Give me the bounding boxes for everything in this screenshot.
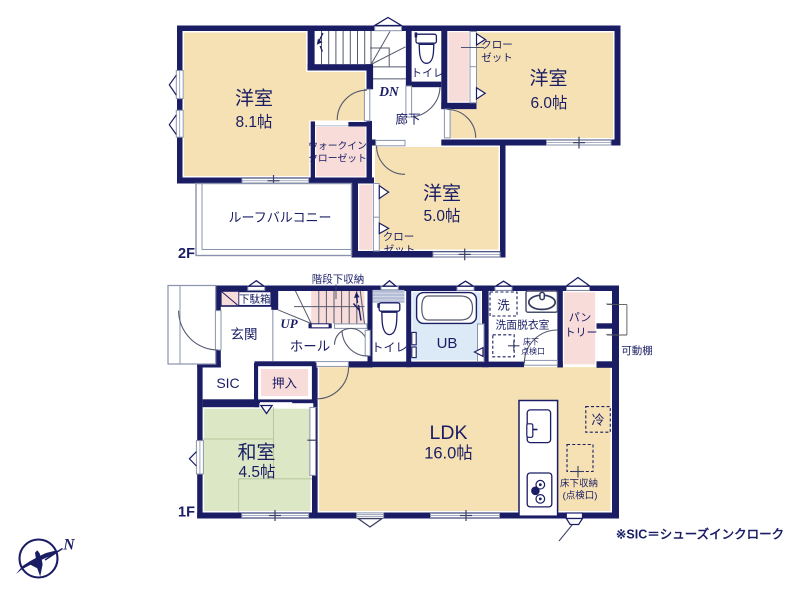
svg-text:ルーフバルコニー: ルーフバルコニー [229,210,332,225]
svg-text:ウォークイン: ウォークイン [308,140,367,152]
svg-text:クロー: クロー [383,231,415,243]
svg-text:1F: 1F [178,505,195,521]
svg-text:洗面脱衣室: 洗面脱衣室 [496,318,550,332]
svg-text:可動棚: 可動棚 [621,344,653,357]
svg-text:5.0帖: 5.0帖 [423,207,460,225]
svg-text:8.1帖: 8.1帖 [235,113,272,131]
svg-text:廊下: 廊下 [395,112,420,127]
svg-text:階段下収納: 階段下収納 [312,273,365,286]
svg-text:(点検口): (点検口) [563,490,598,502]
svg-text:2F: 2F [178,246,195,262]
svg-text:SIC: SIC [216,375,239,391]
svg-text:DN: DN [378,84,400,99]
svg-text:4.5帖: 4.5帖 [238,463,275,481]
svg-text:冷: 冷 [591,413,604,428]
svg-text:下駄箱: 下駄箱 [239,293,271,306]
svg-text:LDK: LDK [430,422,468,444]
svg-text:トイレ: トイレ [371,341,407,355]
svg-text:ゼット: ゼット [384,244,416,256]
svg-text:ゼット: ゼット [481,52,513,64]
svg-text:ホール: ホール [290,339,331,354]
svg-text:床下収納: 床下収納 [560,478,598,490]
svg-text:※SIC＝シューズインクローク: ※SIC＝シューズインクローク [616,527,784,542]
svg-text:クローゼット: クローゼット [308,153,367,165]
svg-text:洋室: 洋室 [529,68,567,90]
svg-text:UP: UP [280,316,298,331]
svg-text:UB: UB [437,335,458,352]
svg-text:点検口: 点検口 [521,346,545,356]
svg-text:洋室: 洋室 [235,88,273,110]
svg-text:クロー: クロー [481,39,513,51]
svg-text:和室: 和室 [237,442,275,464]
svg-text:パン: パン [569,311,592,324]
svg-text:N: N [62,537,75,554]
svg-text:床下: 床下 [523,337,539,347]
svg-text:洗: 洗 [497,299,510,313]
svg-text:トリー: トリー [565,327,598,339]
svg-text:玄関: 玄関 [231,326,258,342]
svg-text:洋室: 洋室 [423,183,461,205]
svg-text:押入: 押入 [272,377,298,391]
svg-text:トイレ: トイレ [411,68,444,80]
svg-text:16.0帖: 16.0帖 [424,444,473,463]
svg-text:6.0帖: 6.0帖 [530,94,567,112]
